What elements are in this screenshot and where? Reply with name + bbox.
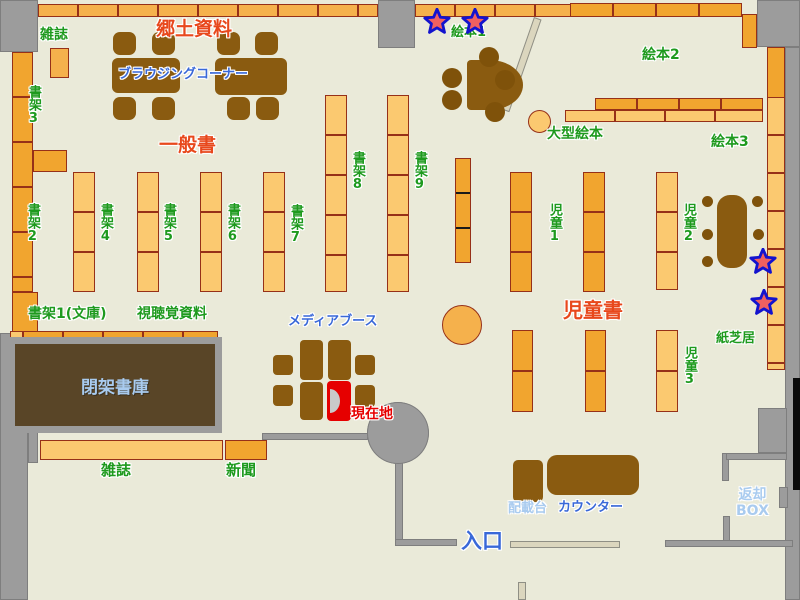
stool	[702, 196, 713, 207]
shelf-children-3	[656, 330, 678, 412]
shelf-right-wall-top	[767, 47, 785, 98]
current-location-label: 現在地	[351, 406, 393, 422]
wall-right	[785, 47, 800, 600]
media-booth-seat	[273, 385, 293, 406]
newspapers-label: 新聞	[226, 462, 256, 479]
shelf-4-label: 書架4	[97, 203, 112, 244]
media-booth-seat	[355, 385, 375, 407]
media-booth-carrel	[300, 340, 323, 380]
large-picture-book-label: 大型絵本	[547, 126, 603, 142]
stool	[752, 196, 763, 207]
shelf-3-label: 書架3	[25, 85, 40, 126]
shelf-children-2	[656, 172, 678, 290]
sorting-table-label: 配載台	[508, 502, 547, 517]
shelf-newspapers	[225, 440, 267, 460]
star-marker-icon	[461, 8, 489, 36]
library-floor-map: 閉架書庫 雑誌 郷土資料 ブラウジングコーナー 一般書 書架3 書架2 書架4 …	[0, 0, 800, 600]
return-box-line1: 返却	[738, 487, 766, 503]
magazines-bottom-label: 雑誌	[101, 462, 131, 479]
shelf-magazine-rack-top	[50, 48, 69, 78]
entrance-rail-down	[395, 458, 403, 546]
counter-desk	[547, 455, 639, 495]
chair	[152, 97, 175, 120]
stool	[702, 229, 713, 240]
shelf-bookcase-5	[137, 172, 159, 292]
chair	[113, 32, 136, 55]
shelf-5-label: 書架5	[160, 203, 175, 244]
entrance-gate-bar	[510, 541, 620, 548]
shelf-top-right-strip	[570, 3, 742, 17]
stool	[442, 90, 462, 110]
shelf-children-lower-2	[585, 330, 606, 412]
entrance-rail-bottom	[395, 539, 457, 546]
wall-top-left-corner	[0, 0, 38, 52]
shelf-children-lower-1	[512, 330, 533, 412]
shelf-9-label: 書架9	[411, 151, 426, 192]
shelf-children-1	[510, 172, 532, 292]
picture-book-2-label: 絵本2	[642, 47, 680, 63]
stool	[753, 229, 764, 240]
stool	[702, 256, 713, 267]
return-box-label: 返却 BOX	[736, 487, 769, 519]
kamishibai-label: 紙芝居	[716, 332, 755, 347]
wall-left-step	[28, 430, 38, 463]
star-marker-icon	[749, 248, 777, 276]
shelf-bookcase-7	[263, 172, 285, 292]
media-booth-seat	[355, 355, 375, 375]
general-books-heading: 一般書	[159, 135, 216, 157]
shelf-8-label: 書架8	[349, 151, 364, 192]
sorting-table-desk	[513, 460, 543, 502]
picture-book-3-label: 絵本3	[711, 134, 749, 150]
media-booth-carrel	[328, 340, 351, 380]
children-books-heading: 児童書	[563, 299, 623, 322]
shelf-top-right-corner-piece	[742, 14, 757, 48]
wall-top-right-corner	[757, 0, 800, 47]
children-2-label: 児童2	[680, 203, 695, 244]
wall-returnbox-bottom	[665, 540, 793, 547]
shelf-2-label: 書架2	[24, 203, 39, 244]
shelf-bookcase-4	[73, 172, 95, 292]
shelf-picturebook-row-bottom	[565, 110, 763, 122]
children-reading-table	[717, 195, 747, 268]
chair	[113, 97, 136, 120]
media-booth-carrel	[300, 382, 323, 420]
entrance-label: 入口	[461, 529, 503, 553]
magazines-top-label: 雑誌	[40, 27, 68, 43]
wall-returnbox-top	[726, 453, 787, 460]
children-3-label: 児童3	[681, 346, 696, 387]
stool	[442, 68, 462, 88]
shelf-1-bunko-label: 書架1(文庫)	[28, 306, 107, 322]
chair	[227, 97, 250, 120]
media-booth-label: メディアブース	[288, 315, 377, 330]
children-1-label: 児童1	[546, 203, 561, 244]
shelf-children-middle	[583, 172, 605, 292]
return-box-line2: BOX	[736, 503, 769, 519]
shelf-6-label: 書架6	[224, 203, 239, 244]
round-display-table	[442, 305, 482, 345]
right-doorway-gap	[793, 378, 800, 490]
closed-stacks-room: 閉架書庫	[8, 337, 222, 433]
shelf-top-left-strip	[38, 4, 378, 17]
entrance-rail-left	[262, 433, 368, 440]
stool	[495, 70, 515, 90]
browsing-corner-label: ブラウジングコーナー	[118, 68, 248, 83]
counter-label: カウンター	[558, 501, 623, 516]
stool	[485, 102, 505, 122]
shelf-bookcase-6	[200, 172, 222, 292]
shelf-bookcase-8	[325, 95, 347, 292]
local-materials-heading: 郷土資料	[156, 19, 232, 41]
closed-stacks-label: 閉架書庫	[81, 373, 149, 398]
booth-screen	[330, 389, 340, 413]
shelf-picturebook-row-top	[595, 98, 763, 110]
media-booth-seat	[273, 355, 293, 375]
entrance-gate-post	[518, 582, 526, 600]
star-marker-icon	[750, 289, 778, 317]
current-location-booth	[327, 381, 351, 421]
chair	[255, 32, 278, 55]
stool	[479, 47, 499, 67]
shelf-bookcase-9	[387, 95, 409, 292]
shelf-magazines-bottom	[40, 440, 223, 460]
chair	[256, 97, 279, 120]
shelf-low-divider	[455, 158, 471, 263]
shelf-right-wall	[767, 97, 785, 370]
wall-returnbox-tab	[779, 487, 788, 508]
wall-returnbox-block	[758, 408, 787, 453]
shelf-left-endcap	[33, 150, 67, 172]
audiovisual-label: 視聴覚資料	[137, 306, 207, 322]
wall-top-pillar	[378, 0, 415, 48]
star-marker-icon	[423, 8, 451, 36]
shelf-7-label: 書架7	[287, 204, 302, 245]
